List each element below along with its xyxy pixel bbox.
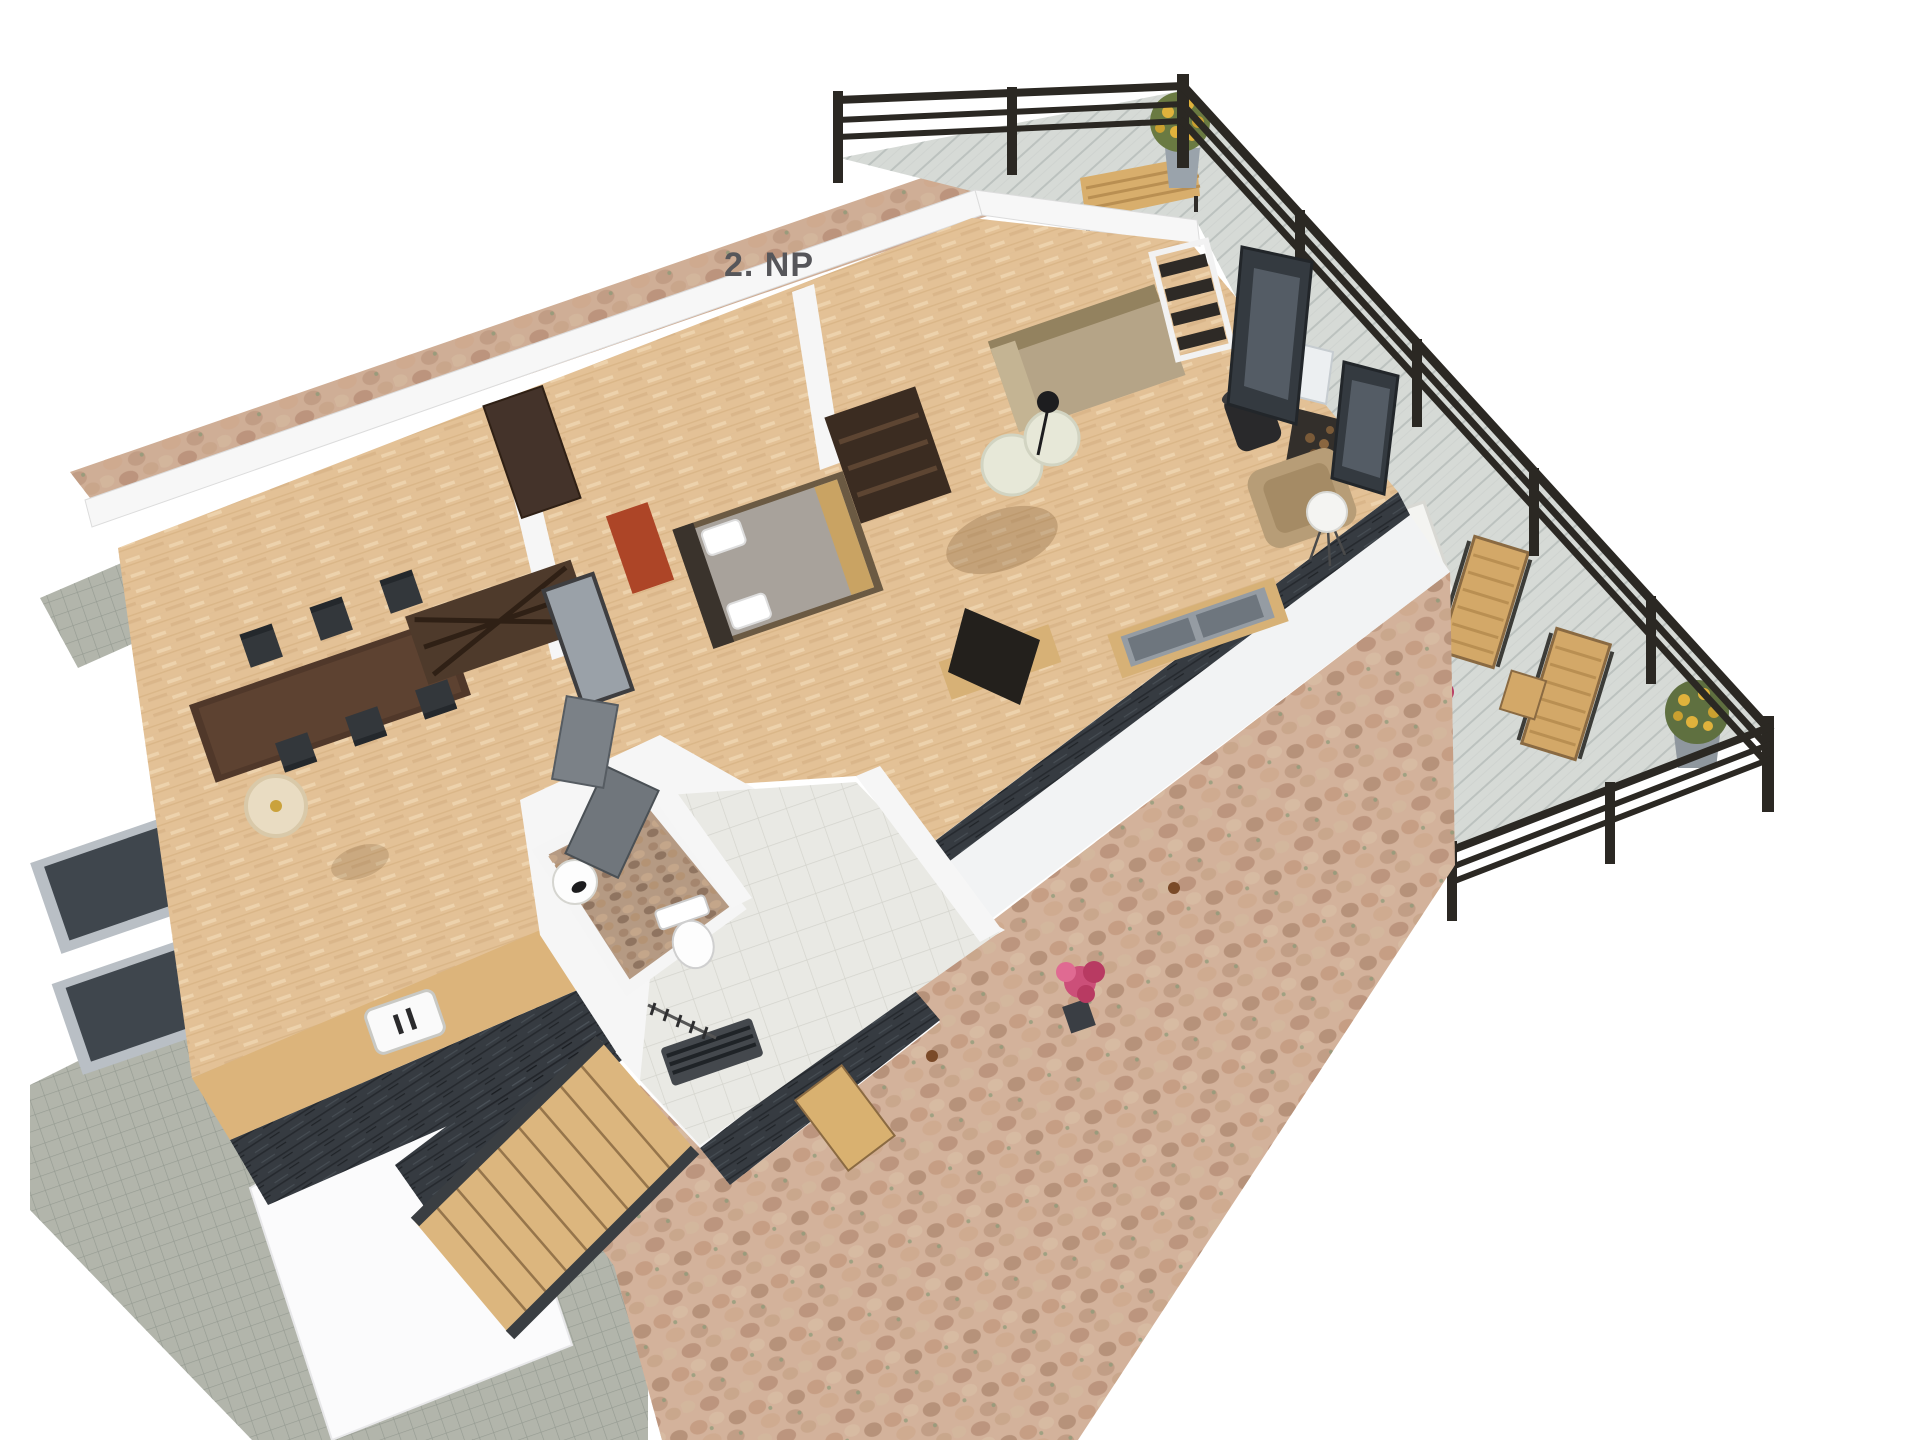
floor-label: 2. NP [724, 246, 814, 285]
glass-door [1228, 247, 1312, 424]
wall-lamp [926, 1050, 938, 1062]
pouf [1025, 411, 1079, 465]
wall-lamp [1168, 882, 1180, 894]
rug-center [270, 800, 282, 812]
washbasin [553, 860, 597, 904]
floor-plan-render: 2. NP [0, 0, 1920, 1440]
floor-plan-svg [0, 0, 1920, 1440]
